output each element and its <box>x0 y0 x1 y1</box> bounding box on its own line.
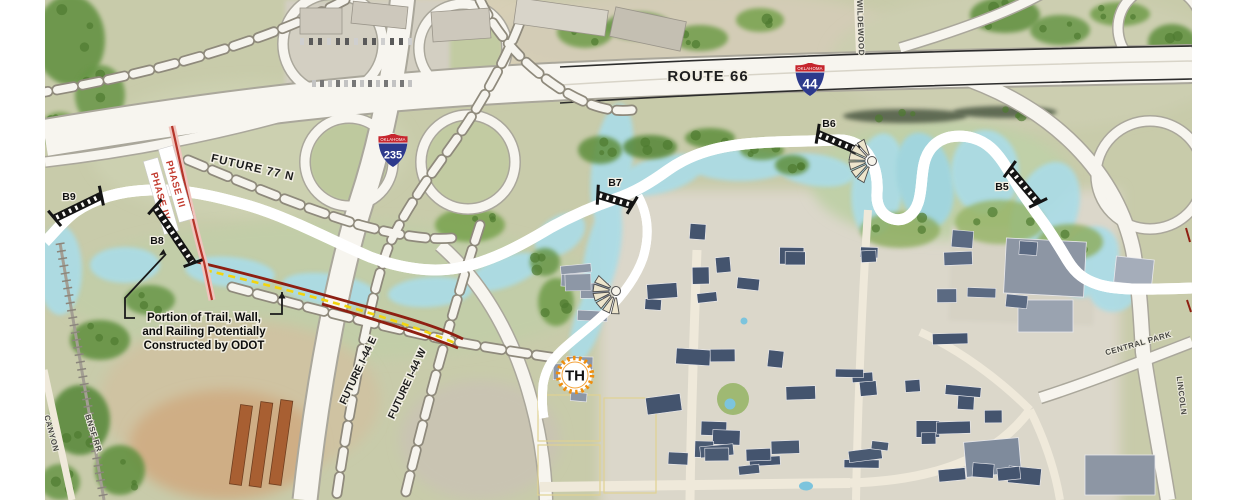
tree <box>642 145 652 155</box>
tree <box>686 40 691 45</box>
apartment-building <box>645 299 662 311</box>
parked-car <box>384 80 388 87</box>
parked-car <box>399 38 403 45</box>
apartment-building <box>861 250 876 262</box>
tree <box>62 433 72 443</box>
apartment-building <box>738 464 760 475</box>
tree <box>561 303 572 314</box>
parked-car <box>336 80 340 87</box>
parked-car <box>320 80 324 87</box>
parked-car <box>400 80 404 87</box>
tree <box>1002 106 1008 112</box>
parked-car <box>344 80 348 87</box>
parked-car <box>312 80 316 87</box>
bridge-label-b8: B8 <box>150 235 164 247</box>
apartment-building <box>746 448 771 461</box>
parked-car <box>408 38 412 45</box>
parked-car <box>345 38 349 45</box>
tree <box>538 254 546 262</box>
apartment-building <box>705 448 729 461</box>
annotation-line-2: and Railing Potentially <box>142 326 266 338</box>
tree <box>140 301 149 310</box>
apartment-building <box>692 267 709 284</box>
tree <box>691 130 701 140</box>
tree <box>607 148 616 157</box>
tree <box>51 477 61 487</box>
apartment-building <box>932 333 968 345</box>
parked-car <box>363 38 367 45</box>
tree <box>96 93 106 103</box>
bridge-label-b7: B7 <box>608 177 622 189</box>
apartment-building <box>1005 294 1028 309</box>
tree <box>973 218 980 225</box>
tree <box>1060 230 1069 239</box>
apartment-building <box>668 452 688 465</box>
apartment-building <box>944 251 973 265</box>
i44-state-text: OKLAHOMA <box>797 66 822 71</box>
tree <box>898 109 906 117</box>
bridge-label-b5: B5 <box>995 181 1009 193</box>
tree <box>875 114 883 122</box>
tree <box>80 42 89 51</box>
tree <box>599 150 604 155</box>
apartment-building <box>871 441 889 451</box>
apartment-building <box>921 433 936 445</box>
route-66-label: ROUTE 66 <box>667 68 748 85</box>
trailhead-marker: TH <box>558 358 592 392</box>
apartment-building <box>771 440 800 454</box>
apartment-building <box>905 379 921 392</box>
tree-patch <box>1030 15 1090 45</box>
parked-car <box>360 80 364 87</box>
tree <box>110 337 118 345</box>
tree <box>918 226 926 234</box>
tree <box>872 224 880 232</box>
tree-patch <box>736 8 784 32</box>
i235-number: 235 <box>384 150 402 162</box>
apartment-building <box>565 274 591 291</box>
site-map: PHASE III PHASE IV TH Portion of Trail, … <box>0 0 1235 500</box>
parked-car <box>318 38 322 45</box>
tree <box>1098 5 1104 11</box>
tree <box>541 308 550 317</box>
annotation-line-3: Constructed by ODOT <box>144 340 265 352</box>
parked-car <box>381 38 385 45</box>
apartment-building <box>689 223 706 239</box>
apartment-building <box>1019 241 1038 256</box>
tree <box>131 480 136 485</box>
tree <box>95 334 103 342</box>
parked-car <box>392 80 396 87</box>
bridge-abutment <box>597 185 598 205</box>
apartment-building <box>676 348 711 366</box>
tree <box>762 14 773 25</box>
tree <box>788 164 798 174</box>
bridge-label-b6: B6 <box>822 118 836 130</box>
apartment-building <box>938 468 966 482</box>
tree <box>1015 113 1020 118</box>
tree <box>1067 21 1072 26</box>
apartment-building <box>737 277 760 291</box>
tree <box>987 207 997 217</box>
apartment-building <box>710 349 735 362</box>
apartment-building <box>859 381 877 397</box>
tree <box>599 138 608 147</box>
parked-car <box>408 80 412 87</box>
parked-car <box>309 38 313 45</box>
tree <box>1026 217 1035 226</box>
apartment-building <box>972 463 994 479</box>
i235-state-text: OKLAHOMA <box>380 137 405 142</box>
tree <box>56 4 67 15</box>
i44-number: 44 <box>802 77 818 92</box>
tree <box>120 459 126 465</box>
bridge-label-b9: B9 <box>62 191 76 203</box>
apartment-building <box>786 386 816 400</box>
apartment-building <box>785 252 805 265</box>
parked-car <box>376 80 380 87</box>
tree <box>591 38 599 46</box>
apartment-building <box>951 230 974 249</box>
tree <box>1100 14 1106 20</box>
apartment-building <box>957 395 974 410</box>
apartment-building <box>967 287 996 297</box>
tree <box>1039 25 1047 33</box>
tree <box>910 111 915 116</box>
parked-car <box>352 80 356 87</box>
parked-car <box>327 38 331 45</box>
apartment-building <box>647 283 678 300</box>
tree <box>1130 14 1136 20</box>
parked-car <box>372 38 376 45</box>
apartment-building <box>936 421 970 434</box>
apartment-building <box>715 257 731 274</box>
tree <box>797 162 804 169</box>
sunburst-center <box>868 157 877 166</box>
tree <box>74 431 82 439</box>
apartment-building <box>570 392 587 402</box>
parked-car <box>390 38 394 45</box>
tree <box>663 140 673 150</box>
parked-car <box>300 38 304 45</box>
tree <box>489 213 496 220</box>
tree <box>1165 33 1176 44</box>
tree <box>692 40 700 48</box>
apartment-building <box>835 369 863 378</box>
annotation-line-1: Portion of Trail, Wall, <box>147 312 261 324</box>
apartment-building <box>712 430 740 446</box>
apartment-building <box>984 410 1002 423</box>
tree <box>87 323 94 330</box>
tree <box>1074 33 1081 40</box>
tree <box>532 265 543 276</box>
tree <box>87 22 94 29</box>
trail-plan-map-page: PHASE III PHASE IV TH Portion of Trail, … <box>0 0 1235 500</box>
parked-car <box>354 38 358 45</box>
trailhead-label: TH <box>565 368 585 385</box>
apartment-building <box>937 289 957 303</box>
parked-car <box>368 80 372 87</box>
apartment-building <box>697 292 718 304</box>
tree <box>138 292 144 298</box>
apartment-building <box>767 350 784 368</box>
apartment-building <box>997 466 1021 481</box>
parked-car <box>328 80 332 87</box>
parked-car <box>336 38 340 45</box>
